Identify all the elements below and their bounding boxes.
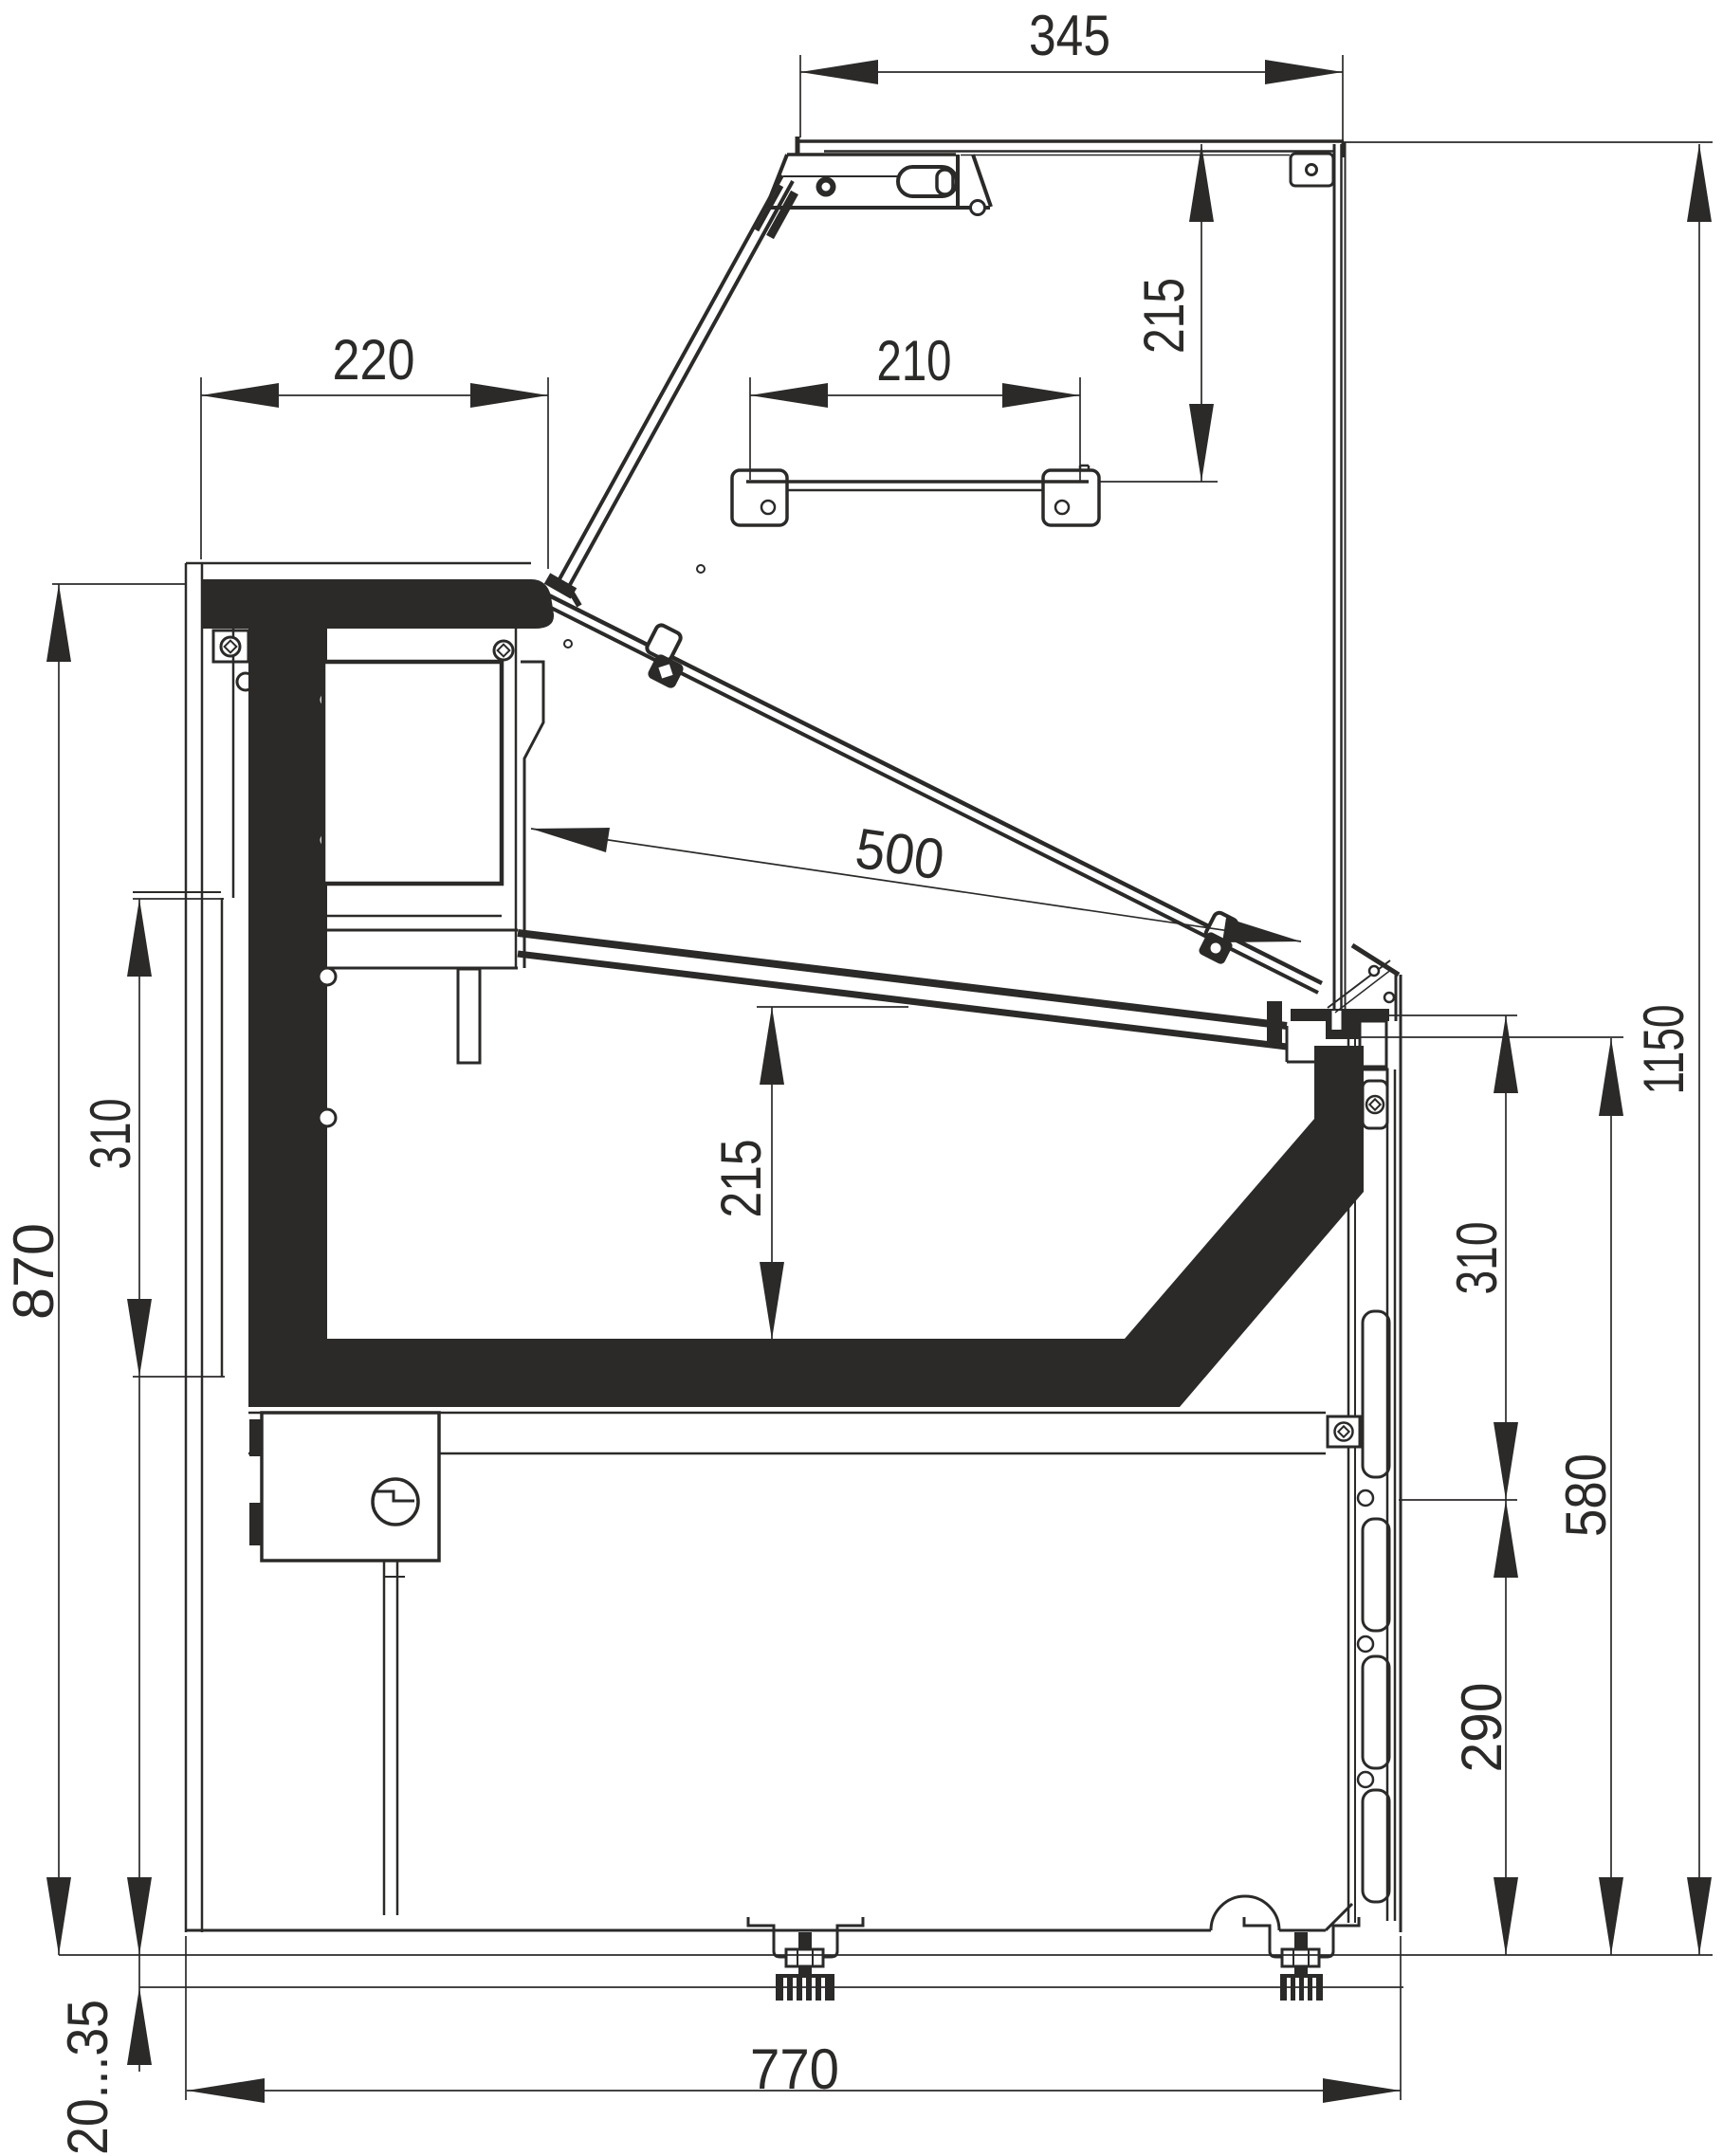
svg-text:310: 310 <box>1445 1222 1509 1295</box>
svg-text:215: 215 <box>1132 278 1196 354</box>
svg-text:500: 500 <box>852 816 948 892</box>
svg-text:220: 220 <box>333 328 415 392</box>
svg-text:210: 210 <box>877 329 952 393</box>
svg-text:1150: 1150 <box>1632 1005 1696 1095</box>
svg-text:20...35: 20...35 <box>56 2000 119 2155</box>
svg-text:215: 215 <box>709 1140 773 1218</box>
svg-text:310: 310 <box>79 1099 142 1170</box>
svg-text:870: 870 <box>2 1223 65 1320</box>
svg-text:290: 290 <box>1450 1683 1513 1773</box>
svg-text:770: 770 <box>750 2037 839 2101</box>
svg-text:345: 345 <box>1029 4 1110 67</box>
svg-text:580: 580 <box>1554 1453 1618 1537</box>
